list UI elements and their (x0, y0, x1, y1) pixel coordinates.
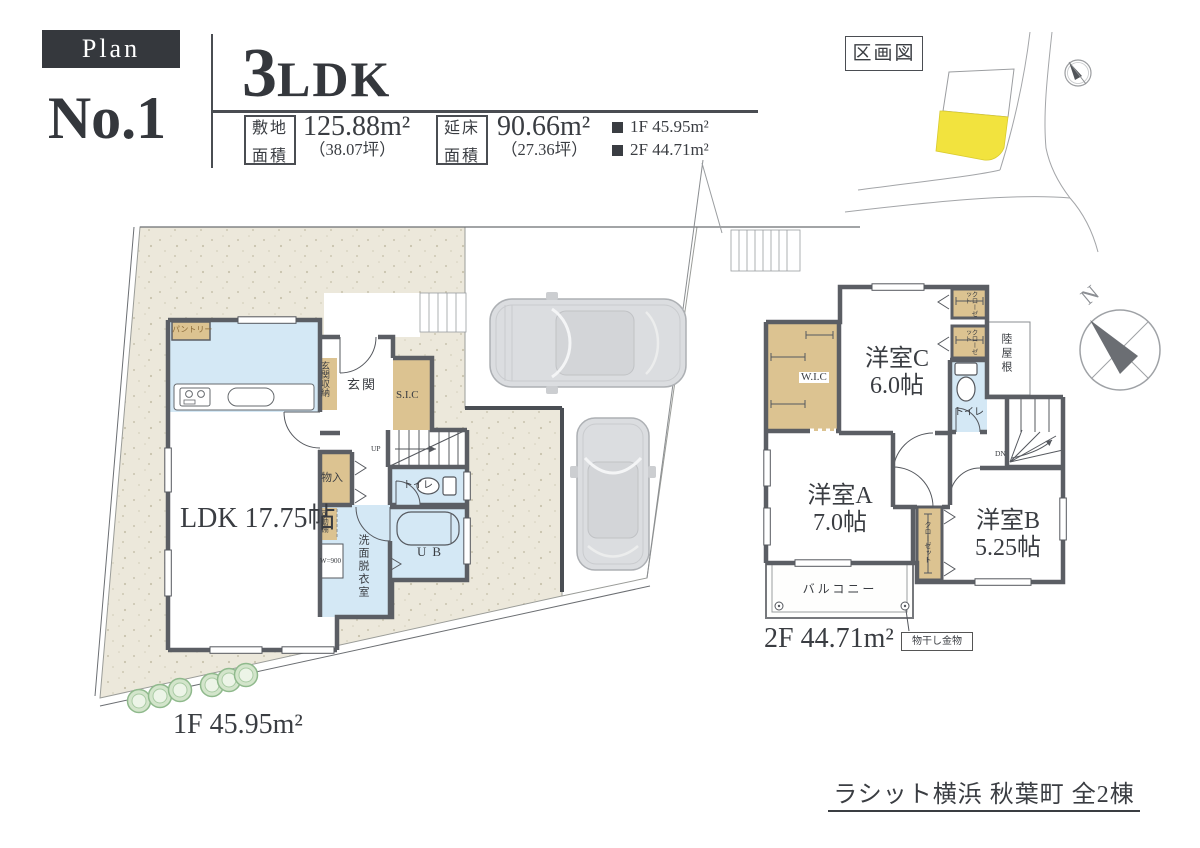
site-area-tsubo: （38.07坪） (309, 142, 396, 159)
room-label-wic: W.I.C (799, 372, 829, 383)
room-label-entrance-storage: 玄関収納 (320, 361, 329, 409)
legend-2f-text: 2F 44.71m² (630, 140, 709, 160)
legend-1f: 1F 45.95m² (612, 117, 709, 137)
block-map-title: 区画図 (845, 36, 923, 71)
total-area-label-2: 面積 (438, 142, 486, 166)
room-label-a: 洋室A (788, 484, 892, 508)
legend-2f: 2F 44.71m² (612, 140, 709, 160)
room-label-entrance: 玄関 (347, 378, 377, 391)
closet-label-3: クローゼット (924, 521, 931, 567)
car-icon-horizontal (490, 292, 686, 394)
compass-icon (1080, 310, 1160, 390)
hanger-hardware-label: 物干し金物 (901, 632, 973, 651)
room-label-toilet-2f: トイレ (951, 408, 987, 418)
room-label-sic: S.I.C (396, 390, 419, 401)
bullet-square-icon (612, 145, 623, 156)
site-area-box: 敷地 面積 (244, 115, 296, 165)
map-compass-icon (1065, 60, 1091, 86)
bullet-square-icon (612, 122, 623, 133)
room-label-storage: 物入 (321, 473, 343, 484)
floor2-caption: 2F 44.71m² (764, 625, 894, 653)
plan-badge: Plan (42, 30, 180, 68)
total-area-value: 90.66m² (497, 113, 590, 141)
room-label-c: 洋室C (845, 347, 949, 371)
total-area-tsubo: （27.36坪） (501, 142, 588, 159)
room-label-pantry: パントリー (172, 326, 210, 334)
closet-label-2: クローゼット (963, 329, 976, 356)
layout-type-suffix: LDK (277, 51, 391, 107)
total-area-label-1: 延床 (438, 114, 486, 138)
plan-2f (764, 284, 1160, 631)
total-area-box: 延床 面積 (436, 115, 488, 165)
layout-type-number: 3 (242, 35, 277, 112)
header-divider (211, 34, 213, 168)
layout-type: 3LDK (242, 34, 391, 114)
room-label-c-size: 6.0帖 (845, 374, 949, 398)
site-area-label-2: 面積 (246, 142, 294, 166)
room-label-b-size: 5.25帖 (953, 536, 1063, 560)
car-icon-vertical (570, 418, 656, 570)
washer-size-label: W=900 (320, 558, 341, 565)
room-label-unit-bath: UB (417, 545, 447, 558)
room-label-b: 洋室B (953, 509, 1063, 533)
site-area-label-1: 敷地 (246, 114, 294, 138)
site-area-value: 125.88m² (303, 113, 410, 141)
room-label-washroom: 洗面脱衣室 (357, 534, 368, 624)
floor-plan-flyer: Plan No.1 3LDK 敷地 面積 125.88m² （38.07坪） 延… (0, 0, 1200, 848)
room-label-ldk: LDK 17.75帖 (180, 505, 336, 533)
balcony-label: バルコニー (788, 583, 892, 595)
project-title-underline (828, 810, 1140, 812)
closet-label-1: クローゼット (963, 291, 976, 318)
room-label-a-size: 7.0帖 (788, 511, 892, 535)
room-label-toilet-1f: トイレ (403, 481, 433, 491)
stairs-down-label: DN (995, 450, 1006, 458)
plan-number: No.1 (36, 84, 178, 153)
room-label-movable-shelf: 可動棚 (321, 510, 329, 540)
project-title: ラシット横浜 秋葉町 全2棟 (828, 774, 1140, 809)
legend-1f-text: 1F 45.95m² (630, 117, 709, 137)
stairs-up-label: UP (371, 445, 381, 453)
floor1-caption: 1F 45.95m² (173, 711, 303, 739)
flat-roof-label: 陸屋根 (1000, 333, 1011, 397)
